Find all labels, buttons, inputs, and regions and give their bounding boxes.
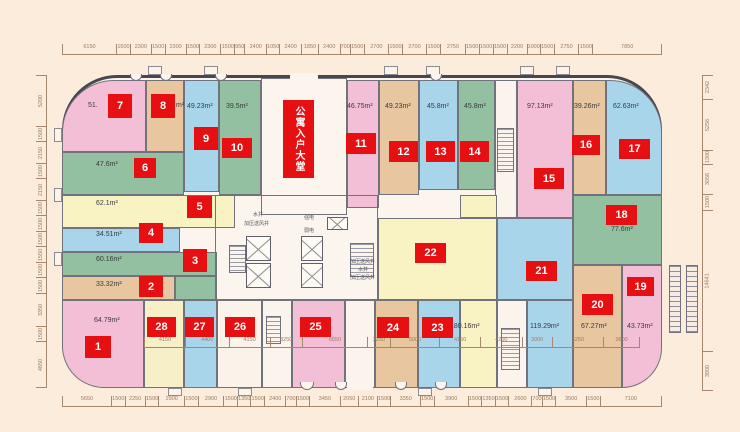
dimension-segment: 7100 <box>600 396 661 406</box>
unit-area-label: 77.6m² <box>611 226 651 235</box>
dimension-segment: 1500 <box>145 396 159 406</box>
dimension-segment: 6150 <box>62 44 116 54</box>
dimension-segment: 1500 <box>479 44 493 54</box>
core-label: 加压送风井 <box>350 274 380 280</box>
dimension-segment: 2400 <box>264 396 285 406</box>
unit-marker-3: 3 <box>183 249 207 272</box>
door-swing-icon <box>300 382 314 390</box>
dimension-segment: 1500 <box>220 44 234 54</box>
core-label: 加压送风井 <box>350 258 380 264</box>
dimension-segment: 6650 <box>302 337 367 347</box>
dimension-segment: 3000 <box>522 337 552 347</box>
dimension-segment: 2150 <box>36 141 46 163</box>
dimension-segment: 1500 <box>36 277 46 292</box>
dimension-segment: 2400 <box>279 44 301 54</box>
unit-area-label: 34.51m² <box>96 231 136 240</box>
room-unit-7 <box>62 80 146 152</box>
wall-notch <box>168 388 182 396</box>
unit-area-label: 43.73m² <box>627 323 667 332</box>
unit-area-label: 46.75m² <box>347 103 387 112</box>
core-label: 水井 <box>358 266 388 272</box>
unit-area-label: 33.32m² <box>96 281 136 290</box>
unit-area-label: 62.1m² <box>96 200 136 209</box>
escalator-icon <box>686 265 698 333</box>
dimension-segment: 1500 <box>36 200 46 215</box>
dimension-segment: 5000 <box>390 337 439 347</box>
core-label: 加压送风井 <box>244 220 274 226</box>
unit-area-label: 39.26m² <box>574 103 614 112</box>
dimension-segment: 3900 <box>703 351 713 390</box>
door-swing-icon <box>435 382 447 390</box>
unit-area-label: 119.29m² <box>530 323 570 332</box>
dimension-segment: 1050 <box>266 44 279 54</box>
unit-area-label: 97.13m² <box>527 103 567 112</box>
dimension-segment: 1500 <box>36 326 46 341</box>
dimension-segment: 5200 <box>36 75 46 126</box>
unit-marker-24: 24 <box>377 317 409 338</box>
elevator-icon <box>246 263 271 288</box>
unit-area-label: 60.16m² <box>96 256 136 265</box>
unit-area-label: 39.5m² <box>226 103 266 112</box>
dimension-segment: 1500 <box>465 44 479 54</box>
dimension-segment: 2400 <box>318 44 340 54</box>
unit-area-label: 45.8m² <box>464 103 504 112</box>
unit-marker-22: 22 <box>415 243 446 263</box>
dimension-segment: 2150 <box>36 178 46 200</box>
wall-notch <box>54 128 62 142</box>
dimension-segment: 1500 <box>186 44 200 54</box>
dimension-segment: 1500 <box>36 163 46 178</box>
dimension-segment: 1550 <box>36 246 46 262</box>
dimension-segment: 1500 <box>151 44 165 54</box>
unit-marker-10: 10 <box>222 138 252 158</box>
core-label: 强电 <box>304 214 334 220</box>
dimension-segment: 5250 <box>552 337 604 347</box>
wall-notch <box>538 388 552 396</box>
unit-marker-7: 7 <box>108 94 132 118</box>
dimension-segment: 3350 <box>390 396 419 406</box>
wall-notch <box>54 252 62 266</box>
unit-marker-2: 2 <box>139 276 163 297</box>
dimension-segment: 2900 <box>158 396 184 406</box>
unit-marker-5: 5 <box>187 196 212 218</box>
unit-marker-26: 26 <box>225 317 255 337</box>
unit-area-label: 49.23m² <box>385 103 425 112</box>
dimension-segment: 2300 <box>199 44 220 54</box>
dimension-segment: 4150 <box>144 337 185 347</box>
dimension-segment: 3450 <box>309 396 339 406</box>
dimension-segment: 700 <box>340 44 350 54</box>
unit-area-label: 64.79m² <box>94 317 134 326</box>
dimension-segment: 4150 <box>439 337 480 347</box>
dimension-segment: 2050 <box>340 396 358 406</box>
dimension-segment: 1500 <box>250 396 264 406</box>
unit-marker-19: 19 <box>627 277 654 296</box>
dimension-segment: 1850 <box>301 44 318 54</box>
unit-marker-8: 8 <box>151 94 175 118</box>
dimension-segment: 1500 <box>426 44 440 54</box>
stairs-icon <box>497 128 514 172</box>
dimension-segment: 2700 <box>402 44 426 54</box>
unit-marker-20: 20 <box>582 294 613 315</box>
unit-marker-6: 6 <box>134 158 156 178</box>
dimension-segment: 1500 <box>36 262 46 277</box>
dimension-segment: 2100 <box>358 396 377 406</box>
dimension-segment: 1500 <box>542 396 556 406</box>
dimension-segment: 2342 <box>703 75 713 99</box>
dimension-segment: 1350 <box>481 396 494 406</box>
dimension-segment: 2750 <box>440 44 465 54</box>
dimension-segment: 1500 <box>495 396 509 406</box>
wall-notch <box>384 66 398 75</box>
entrance-gap <box>290 73 318 79</box>
core-label: 水井 <box>253 211 283 217</box>
unit-marker-21: 21 <box>526 261 557 281</box>
wall-notch <box>418 388 432 396</box>
stairs-icon <box>501 328 520 370</box>
dimension-chain-bottom: 5650150022501500290015002900150013501500… <box>62 396 662 407</box>
room-unit-6 <box>62 152 184 195</box>
dimension-segment: 2700 <box>364 44 388 54</box>
escalator-icon <box>669 265 681 333</box>
dimension-segment: 1500 <box>540 44 554 54</box>
room-unit-12 <box>379 80 419 195</box>
unit-marker-16: 16 <box>572 135 600 155</box>
dimension-segment: 1500 <box>388 44 402 54</box>
dimension-segment: 1500 <box>223 396 237 406</box>
dimension-segment: 2750 <box>554 44 579 54</box>
door-swing-icon <box>335 382 347 390</box>
dimension-segment: 1500 <box>703 194 713 209</box>
unit-marker-14: 14 <box>460 141 489 162</box>
room-unit-17 <box>606 80 662 195</box>
unit-marker-12: 12 <box>389 141 418 162</box>
dimension-segment: 2300 <box>165 44 186 54</box>
dimension-segment: 2250 <box>125 396 145 406</box>
door-swing-icon <box>395 382 407 390</box>
dimension-segment: 2250 <box>367 337 390 347</box>
dimension-segment: 950 <box>234 44 244 54</box>
dimension-segment: 1500 <box>468 396 482 406</box>
unit-area-label: 180.16m² <box>450 323 490 332</box>
dimension-segment: 4150 <box>229 337 270 347</box>
room-unit-22 <box>460 195 497 218</box>
dimension-segment: 2600 <box>508 396 531 406</box>
floor-plan-canvas: 164.79m²233.32m²360.16m²434.51m²562.1m²6… <box>0 0 740 432</box>
room-unit-14 <box>458 80 495 190</box>
dimension-segment: 1500 <box>377 396 391 406</box>
dimension-segment: 1000 <box>527 44 540 54</box>
unit-area-label: 67.27m² <box>581 323 621 332</box>
unit-marker-17: 17 <box>619 139 650 159</box>
elevator-icon <box>246 236 271 261</box>
unit-area-label: 49.23m² <box>187 103 227 112</box>
entrance-gap <box>347 384 373 390</box>
dimension-segment: 4400 <box>185 337 228 347</box>
unit-marker-25: 25 <box>300 317 331 337</box>
dimension-chain-left: 5200150021501500215015001500150015501500… <box>36 75 47 388</box>
lobby-banner-label: 公寓入户大堂 <box>291 106 306 172</box>
unit-marker-27: 27 <box>185 317 214 337</box>
dimension-segment: 3500 <box>555 396 586 406</box>
unit-area-label: 47.6m² <box>96 161 136 170</box>
stairs-icon <box>229 245 246 273</box>
unit-area-label: 62.63m² <box>613 103 653 112</box>
core-label: 弱电 <box>304 227 334 233</box>
wall-notch <box>238 388 252 396</box>
dimension-segment: 3600 <box>603 337 639 347</box>
dimension-chain-top: 6150150023001500230015002300150095024001… <box>62 44 662 55</box>
dimension-chain-right: 23425256130030561500146413900 <box>702 75 713 391</box>
dimension-segment: 1500 <box>184 396 198 406</box>
dimension-segment: 1500 <box>578 44 592 54</box>
dimension-segment: 5650 <box>62 396 111 406</box>
unit-marker-13: 13 <box>426 141 455 162</box>
unit-marker-11: 11 <box>346 133 376 154</box>
dimension-chain-inner: 4150440041503250665022505000415042003000… <box>144 337 640 348</box>
dimension-segment: 1500 <box>36 126 46 141</box>
dimension-segment: 14641 <box>703 210 713 352</box>
dimension-segment: 2300 <box>130 44 151 54</box>
dimension-segment: 1500 <box>350 44 364 54</box>
room-unit-13 <box>419 80 458 190</box>
dimension-segment: 3900 <box>434 396 468 406</box>
dimension-segment: 1500 <box>36 215 46 230</box>
dimension-segment: 7850 <box>592 44 661 54</box>
unit-marker-4: 4 <box>139 223 163 243</box>
dimension-segment: 3056 <box>703 164 713 194</box>
dimension-segment: 2200 <box>507 44 527 54</box>
room-unit-15 <box>517 80 573 218</box>
dimension-segment: 1300 <box>703 150 713 164</box>
dimension-segment: 2400 <box>244 44 266 54</box>
lobby-entrance-banner: 公寓入户大堂 <box>283 100 314 178</box>
unit-marker-28: 28 <box>147 317 176 337</box>
unit-marker-9: 9 <box>194 127 218 150</box>
dimension-segment: 1500 <box>111 396 125 406</box>
elevator-icon <box>301 236 323 261</box>
elevator-icon <box>301 263 323 288</box>
dimension-segment: 700 <box>531 396 541 406</box>
dimension-segment: 1500 <box>116 44 130 54</box>
room-unit-3 <box>175 276 217 300</box>
dimension-segment: 4650 <box>36 341 46 387</box>
dimension-segment: 5256 <box>703 99 713 151</box>
wall-notch <box>54 188 62 202</box>
dimension-segment: 1500 <box>586 396 600 406</box>
wall-notch <box>556 66 570 75</box>
dimension-segment: 4200 <box>480 337 522 347</box>
dimension-segment: 2900 <box>198 396 224 406</box>
dimension-segment: 1500 <box>420 396 434 406</box>
unit-marker-15: 15 <box>534 168 564 189</box>
dimension-segment: 1350 <box>237 396 250 406</box>
dimension-segment: 3250 <box>270 337 302 347</box>
dimension-segment: 1500 <box>36 231 46 246</box>
dimension-segment: 1500 <box>296 396 310 406</box>
dimension-segment: 700 <box>285 396 295 406</box>
room-unit-21 <box>497 218 573 300</box>
unit-marker-18: 18 <box>606 205 637 225</box>
unit-area-label: 45.8m² <box>427 103 467 112</box>
unit-marker-23: 23 <box>422 317 453 338</box>
dimension-segment: 1500 <box>493 44 507 54</box>
wall-notch <box>520 66 534 75</box>
dimension-segment: 3350 <box>36 293 46 326</box>
unit-marker-1: 1 <box>85 336 111 358</box>
